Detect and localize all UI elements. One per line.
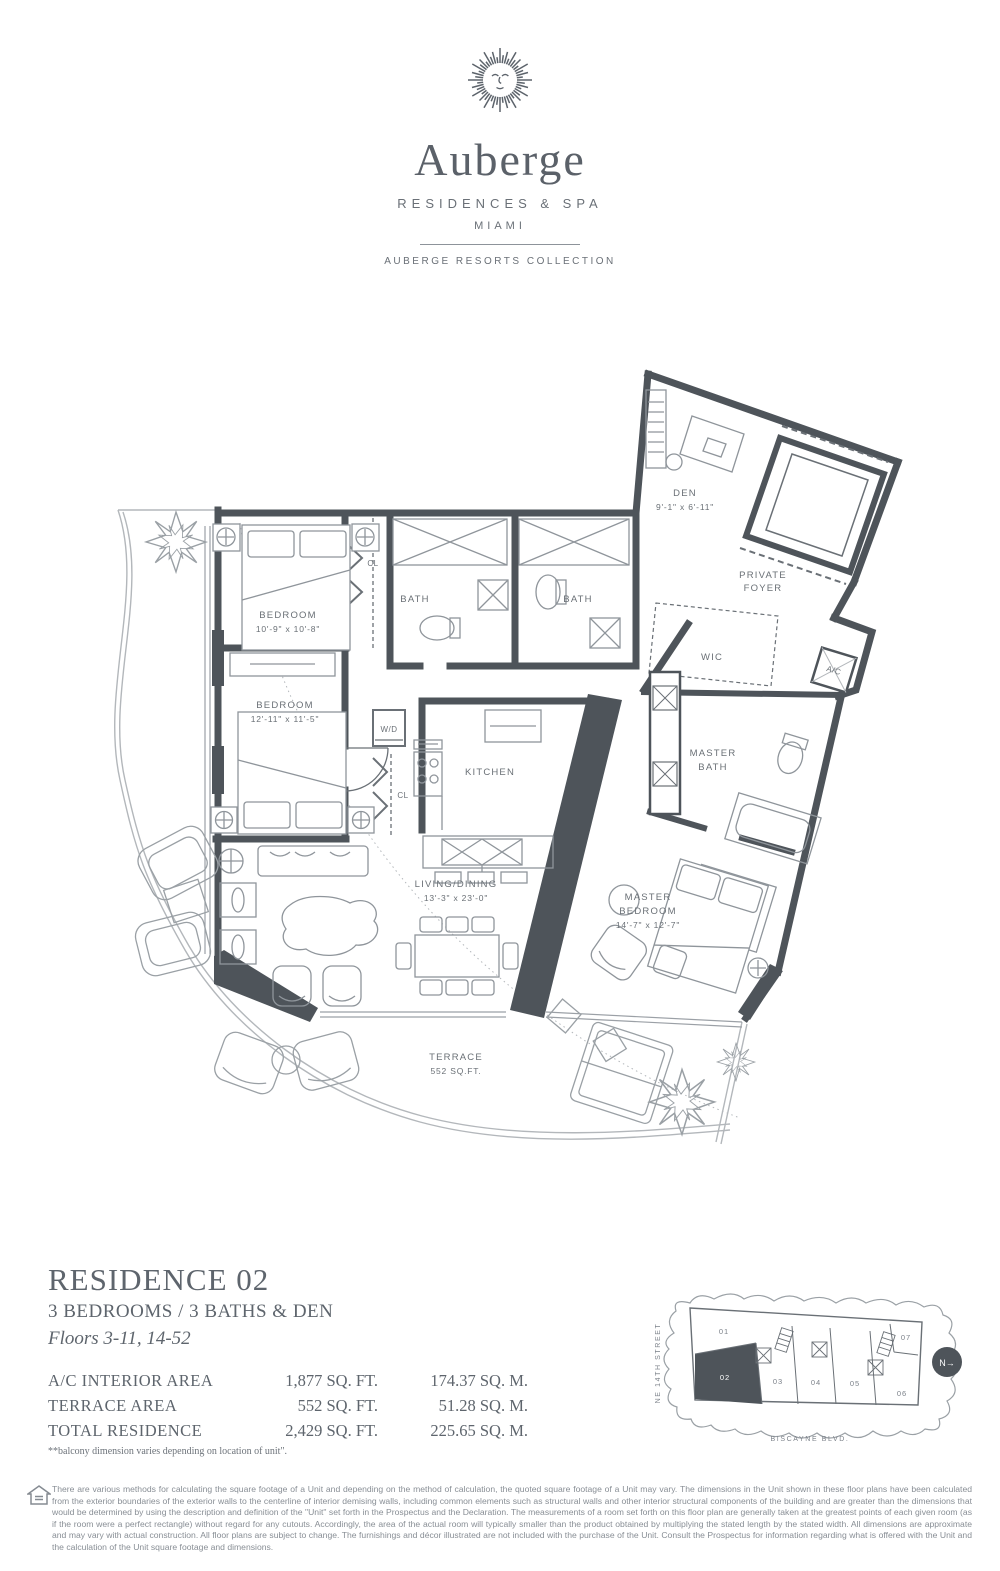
- area-sqm: 51.28 SQ. M.: [378, 1393, 528, 1418]
- bath-fixtures: [393, 519, 629, 648]
- masterbath-label-1: MASTER: [690, 748, 737, 759]
- master-label-1: MASTER: [625, 892, 672, 903]
- area-sqm: 174.37 SQ. M.: [378, 1368, 528, 1393]
- floorplan-drawing: A/C: [90, 360, 910, 1150]
- bedroom2-furniture: [211, 653, 374, 834]
- north-label: N→: [939, 1358, 955, 1368]
- masterbath-label-2: BATH: [698, 762, 727, 773]
- area-sqft: 2,429 SQ. FT.: [253, 1418, 378, 1443]
- keyplan: 01 02 03 04 05 06 07 N→ NE 14TH STREET B…: [650, 1278, 980, 1453]
- unit-07-label: 07: [901, 1333, 911, 1342]
- living-label: LIVING/DINING: [415, 879, 498, 890]
- dining-set: [396, 917, 518, 995]
- table-row: TOTAL RESIDENCE 2,429 SQ. FT. 225.65 SQ.…: [48, 1418, 528, 1443]
- area-label: A/C INTERIOR AREA: [48, 1368, 253, 1393]
- sun-face-icon: [454, 34, 546, 126]
- master-closet: [650, 672, 680, 814]
- bath2-label: BATH: [563, 594, 592, 605]
- terrace-area: 552 SQ.FT.: [431, 1066, 482, 1076]
- brand-header: Auberge RESIDENCES & SPA MIAMI AUBERGE R…: [0, 34, 1000, 267]
- den-label: DEN: [673, 488, 697, 499]
- residence-title: RESIDENCE 02: [48, 1262, 269, 1298]
- unit-01-label: 01: [719, 1327, 729, 1336]
- equal-housing-icon: [27, 1485, 51, 1507]
- doors-closets: [345, 518, 778, 836]
- foyer-label-2: FOYER: [744, 583, 783, 594]
- area-table: A/C INTERIOR AREA 1,877 SQ. FT. 174.37 S…: [48, 1368, 528, 1443]
- floorplan-brochure-page: Auberge RESIDENCES & SPA MIAMI AUBERGE R…: [0, 0, 1000, 1571]
- kitchen-fixtures: [414, 710, 553, 883]
- sun-face: [486, 66, 515, 95]
- unit-02-label: 02: [720, 1373, 730, 1382]
- table-row: TERRACE AREA 552 SQ. FT. 51.28 SQ. M.: [48, 1393, 528, 1418]
- living-dims: 13'-3" x 23'-0": [424, 893, 488, 903]
- brand-collection: AUBERGE RESORTS COLLECTION: [0, 256, 1000, 267]
- brand-divider: [420, 244, 580, 245]
- foyer-label-1: PRIVATE: [739, 570, 787, 581]
- unit-03-label: 03: [773, 1377, 783, 1386]
- washer-dryer-label: W/D: [380, 725, 397, 734]
- ac-closet: A/C: [812, 648, 857, 693]
- area-sqft: 1,877 SQ. FT.: [253, 1368, 378, 1393]
- street-label-left: NE 14TH STREET: [655, 1323, 662, 1404]
- bedroom1-label: BEDROOM: [259, 610, 317, 621]
- residence-subtitle: 3 BEDROOMS / 3 BATHS & DEN: [48, 1301, 333, 1323]
- unit-06-label: 06: [897, 1389, 907, 1398]
- kitchen-label: KITCHEN: [465, 767, 515, 778]
- bedroom1-dims: 10'-9" x 10'-8": [256, 624, 320, 634]
- area-label: TERRACE AREA: [48, 1393, 253, 1418]
- closet2-label: CL: [397, 791, 408, 800]
- area-sqm: 225.65 SQ. M.: [378, 1418, 528, 1443]
- den-dims: 9'-1" x 6'-11": [656, 502, 714, 512]
- bedroom2-label: BEDROOM: [256, 700, 314, 711]
- unit-05-label: 05: [850, 1379, 860, 1388]
- street-label-bottom: BISCAYNE BLVD.: [771, 1436, 850, 1443]
- area-label: TOTAL RESIDENCE: [48, 1418, 253, 1443]
- brand-name: Auberge: [0, 133, 1000, 186]
- bath1-label: BATH: [400, 594, 429, 605]
- master-dims: 14'-7" x 12'-7": [616, 920, 680, 930]
- closet1-label: CL: [367, 559, 378, 568]
- balcony-footnote: **balcony dimension varies depending on …: [48, 1446, 287, 1457]
- area-sqft: 552 SQ. FT.: [253, 1393, 378, 1418]
- unit-04-label: 04: [811, 1378, 821, 1387]
- brand-city: MIAMI: [0, 220, 1000, 232]
- residence-floors: Floors 3-11, 14-52: [48, 1328, 191, 1350]
- brand-subtitle: RESIDENCES & SPA: [0, 196, 1000, 211]
- legal-disclaimer: There are various methods for calculatin…: [52, 1484, 972, 1554]
- table-row: A/C INTERIOR AREA 1,877 SQ. FT. 174.37 S…: [48, 1368, 528, 1393]
- terrace-label: TERRACE: [429, 1052, 483, 1063]
- bedroom2-dims: 12'-11" x 11'-5": [251, 714, 320, 724]
- wic-label: WIC: [701, 652, 723, 663]
- master-label-2: BEDROOM: [619, 906, 677, 917]
